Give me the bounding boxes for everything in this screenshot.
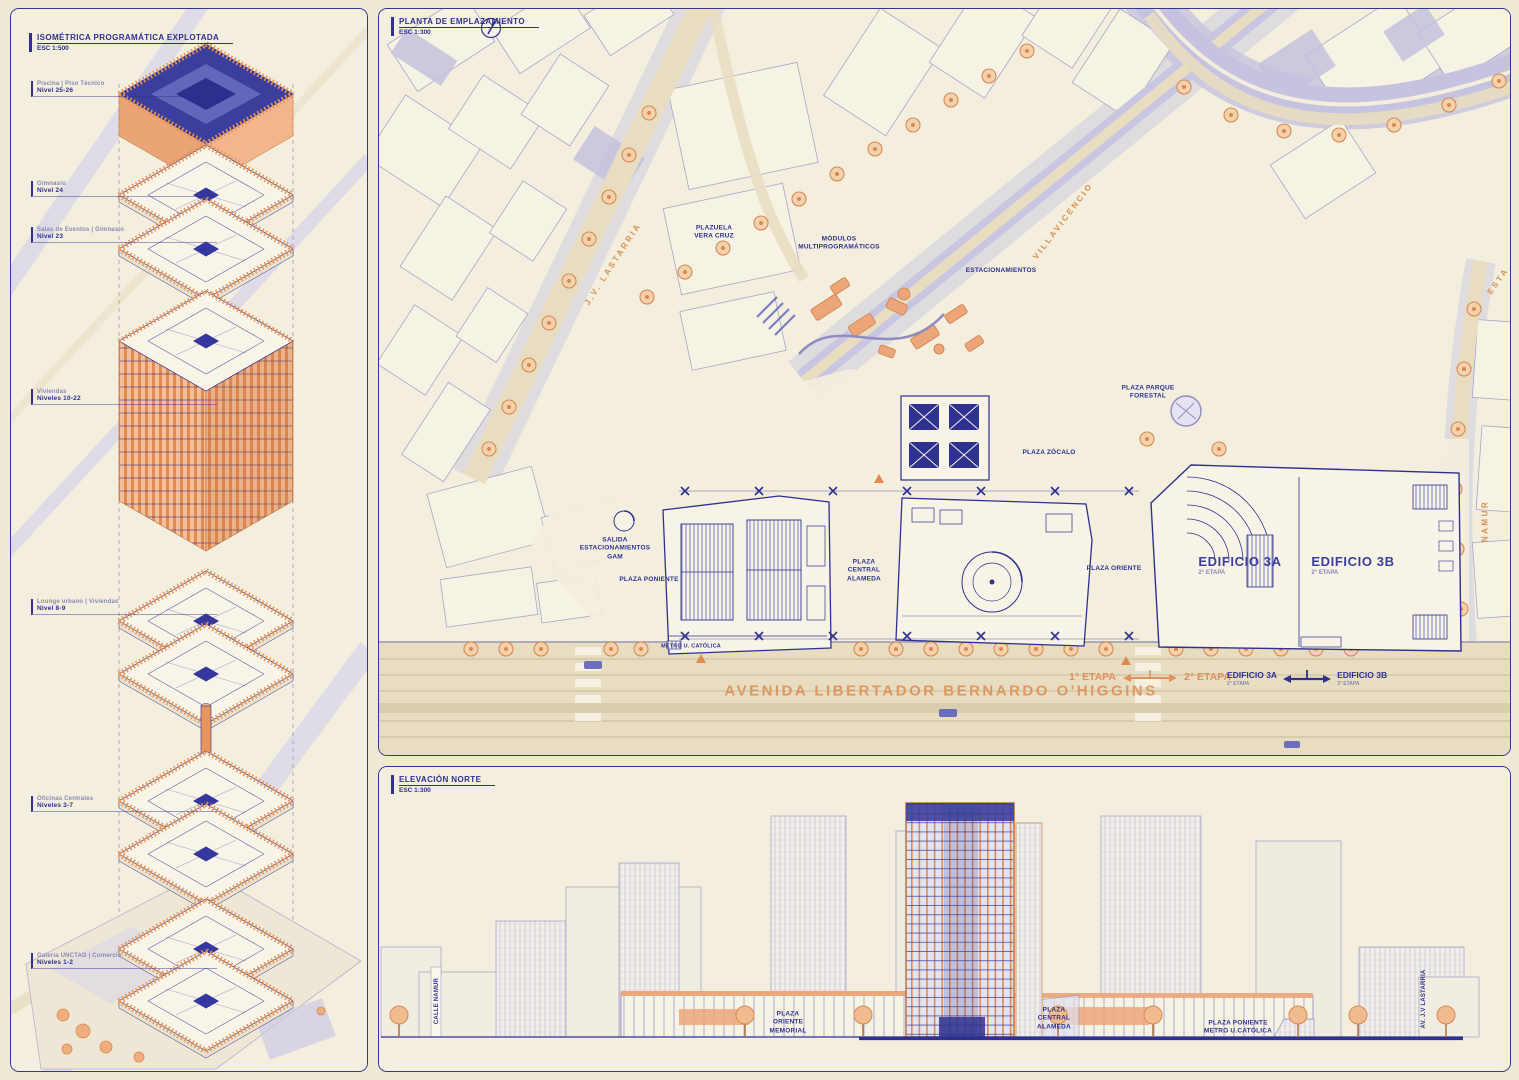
building-arrow-icon (1282, 669, 1332, 687)
level-label-7: Galería UNCTAD | Comercio Niveles 1-2 (31, 953, 217, 969)
label-salida-estacionamientos: SALIDA ESTACIONAMIENTOS GAM (580, 536, 651, 561)
street-label-namur: NAMUR (1481, 500, 1490, 542)
label-plaza-parque-forestal: PLAZA PARQUE FORESTAL (1122, 385, 1175, 402)
iso-tower-block (119, 291, 293, 551)
central-building-plan (896, 498, 1092, 646)
label-metro-u-catolica: METRO U. CATÓLICA (661, 643, 721, 650)
north-elevation-drawing (379, 767, 1511, 1072)
site-plan-panel: PLANTA DE EMPLAZAMIENTO ESC 1:300 PLAZUE… (378, 8, 1511, 756)
level-label-6: Oficinas Centrales Niveles 3-7 (31, 796, 217, 812)
label-plaza-oriente-memorial: PLAZA ORIENTE MEMORIAL (770, 1010, 807, 1035)
label-plaza-poniente-metro: PLAZA PONIENTE METRO U.CATÓLICA (1204, 1020, 1272, 1037)
iso-title-block: ISOMÉTRICA PROGRAMÁTICA EXPLOTADA ESC 1:… (29, 33, 233, 52)
building-legend: EDIFICIO 3A 2° ETAPA EDIFICIO 3B 3° ETAP… (1227, 669, 1387, 687)
level-label-4: Viviendas Niveles 10-22 (31, 389, 217, 405)
iso-title: ISOMÉTRICA PROGRAMÁTICA EXPLOTADA (37, 33, 233, 44)
avenue-label: AVENIDA LIBERTADOR BERNARDO O'HIGGINS (724, 683, 1157, 700)
label-edificio-3a: EDIFICIO 3A 2° ETAPA (1198, 554, 1281, 576)
label-plaza-central-alameda: PLAZA CENTRAL ALAMEDA (847, 558, 881, 583)
tower-footprint (901, 396, 989, 480)
label-plaza-zocalo: PLAZA ZÓCALO (1022, 449, 1075, 457)
presentation-board: { "iso_panel": { "title": "ISOMÉTRICA PR… (0, 0, 1519, 1080)
label-plaza-poniente: PLAZA PONIENTE (619, 576, 678, 584)
north-elevation-panel: ELEVACIÓN NORTE ESC 1:300 CALLE NAMUR PL… (378, 766, 1511, 1072)
iso-scale: ESC 1:500 (37, 45, 233, 52)
elevation-title-block: ELEVACIÓN NORTE ESC 1:300 (391, 775, 495, 794)
level-label-3: Salas de Eventos | Gimnasio Nivel 23 (31, 227, 217, 243)
stage-legend: 1° ETAPA 2° ETAPA (1069, 669, 1231, 685)
site-title: PLANTA DE EMPLAZAMIENTO (399, 17, 539, 28)
site-title-block: PLANTA DE EMPLAZAMIENTO ESC 1:300 (391, 17, 539, 36)
label-edificio-3b: EDIFICIO 3B 2° ETAPA (1311, 554, 1394, 576)
label-calle-namur: CALLE NAMUR (434, 978, 442, 1024)
level-label-5: Lounge urbano | Viviendas Nivel 8-9 (31, 599, 217, 615)
elevation-title: ELEVACIÓN NORTE (399, 775, 495, 786)
tower-elevation (906, 803, 1042, 1037)
label-modulos: MÓDULOS MULTIPROGRAMÁTICOS (798, 236, 879, 253)
site-scale: ESC 1:300 (399, 29, 539, 36)
parking-exit (614, 511, 634, 531)
label-av-lastarria: AV. J.V LASTARRIA (1421, 970, 1429, 1029)
level-label-1: Piscina | Piso Técnico Nivel 25-26 (31, 81, 217, 97)
label-plaza-oriente: PLAZA ORIENTE (1087, 565, 1142, 573)
label-elev-plaza-central-alameda: PLAZA CENTRAL ALAMEDA (1037, 1006, 1071, 1031)
gam-west-building-plan (663, 496, 831, 654)
exploded-isometric-drawing (11, 9, 368, 1072)
label-plazuela-vera-cruz: PLAZUELA VERA CRUZ (694, 225, 733, 242)
stage-arrow-icon (1121, 669, 1179, 685)
level-label-2: Gimnasio Nivel 24 (31, 181, 217, 197)
site-plan-drawing (379, 9, 1511, 756)
exploded-isometric-panel: ISOMÉTRICA PROGRAMÁTICA EXPLOTADA ESC 1:… (10, 8, 368, 1072)
roundabout (1171, 396, 1201, 426)
elevation-scale: ESC 1:300 (399, 787, 495, 794)
label-estacionamientos: ESTACIONAMIENTOS (966, 267, 1037, 275)
